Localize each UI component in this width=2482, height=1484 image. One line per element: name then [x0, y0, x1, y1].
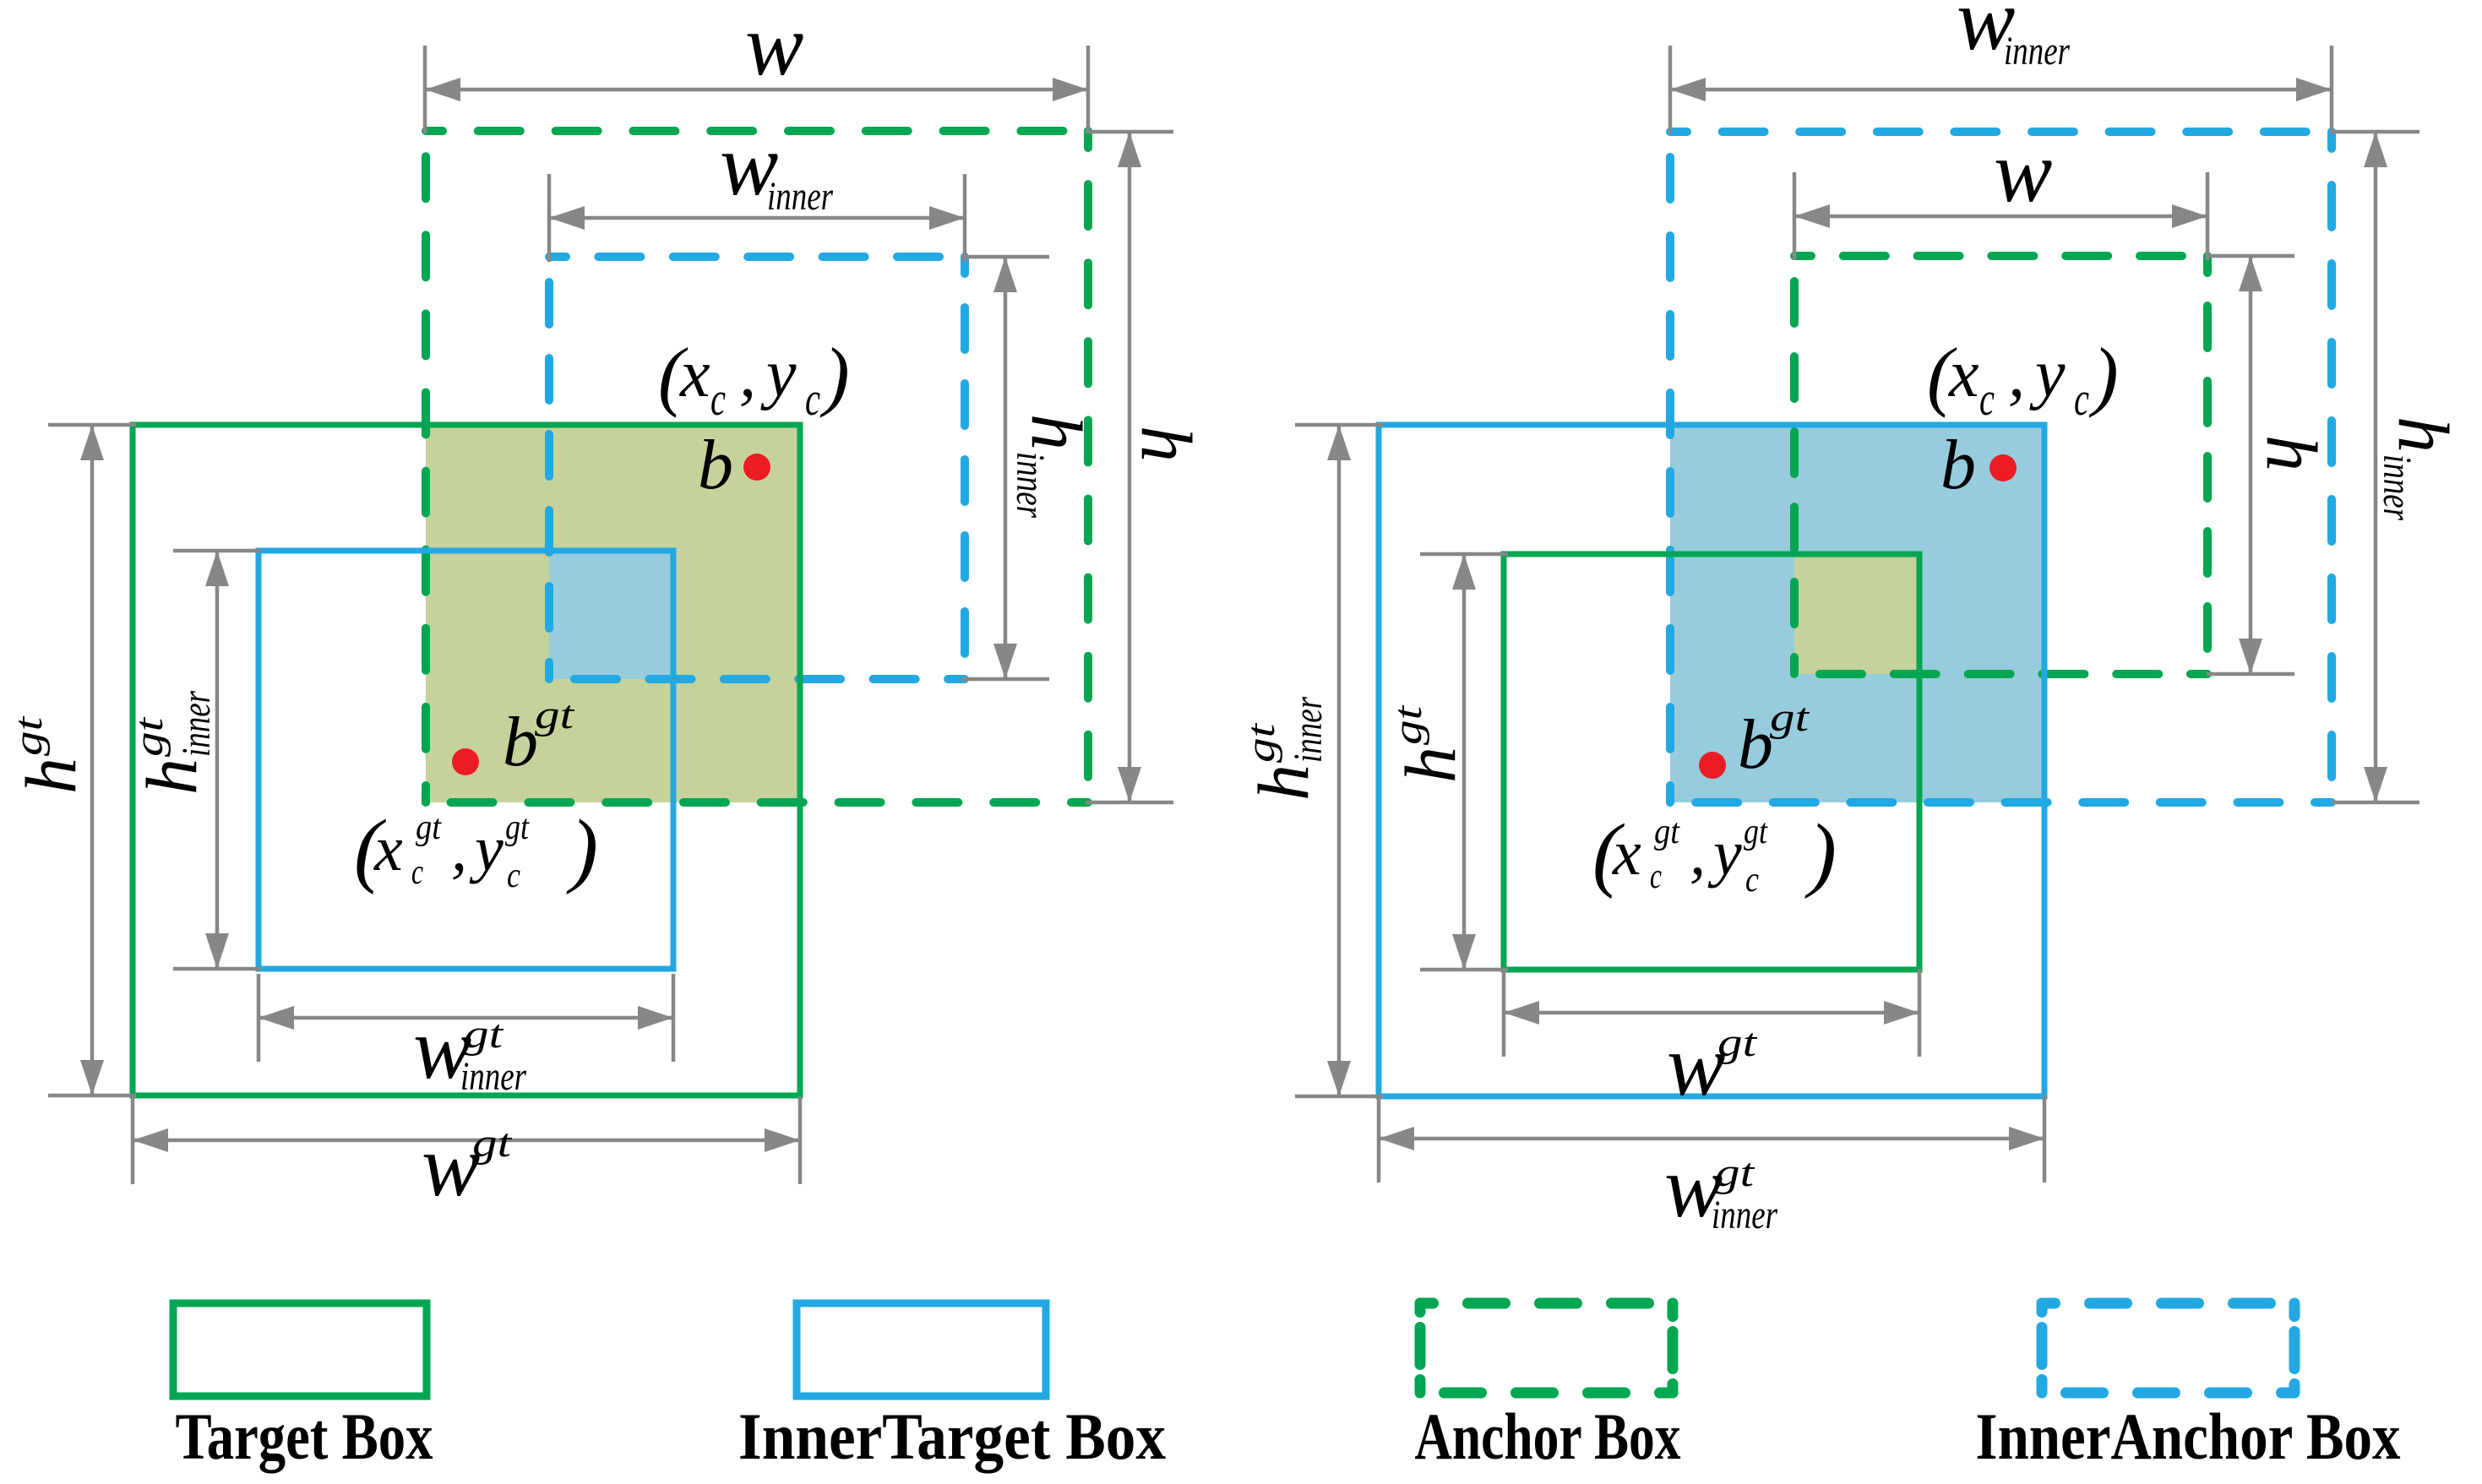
svg-text:w: w [745, 0, 803, 94]
svg-text:inner: inner [2004, 29, 2070, 73]
svg-text:inner: inner [2375, 454, 2419, 520]
svg-text:inner: inner [1712, 1193, 1777, 1237]
svg-text:h: h [2251, 435, 2332, 471]
svg-text:): ) [819, 332, 850, 418]
svg-text:h: h [2383, 416, 2464, 453]
svg-text:h: h [1390, 747, 1471, 783]
svg-text:x: x [679, 337, 710, 411]
svg-text:c: c [1745, 861, 1759, 900]
svg-text:gt: gt [1770, 695, 1810, 740]
svg-text:y: y [1707, 818, 1742, 889]
svg-text:gt: gt [1654, 813, 1680, 851]
svg-text:x: x [1612, 818, 1641, 889]
svg-text:inner: inner [174, 691, 219, 757]
svg-text:h: h [1243, 764, 1324, 801]
svg-text:gt: gt [6, 715, 51, 756]
svg-text:c: c [1979, 373, 1995, 426]
svg-text:inner: inner [1286, 697, 1331, 763]
svg-text:h: h [10, 758, 91, 794]
svg-text:gt: gt [416, 808, 442, 847]
svg-text:w: w [1994, 123, 2052, 220]
svg-text:gt: gt [464, 1012, 504, 1057]
svg-text:c: c [1650, 857, 1662, 896]
svg-text:gt: gt [1385, 704, 1430, 745]
svg-text:InnerTarget Box: InnerTarget Box [738, 1400, 1166, 1473]
svg-text:,: , [2008, 337, 2025, 411]
svg-text:inner: inner [1008, 452, 1053, 518]
svg-text:h: h [1126, 426, 1207, 462]
svg-text:gt: gt [535, 693, 575, 737]
svg-text:c: c [507, 856, 520, 895]
svg-text:,: , [1690, 818, 1706, 889]
svg-text:c: c [710, 373, 726, 426]
svg-text:c: c [2074, 373, 2089, 426]
svg-text:y: y [760, 337, 797, 411]
svg-text:gt: gt [1238, 722, 1283, 763]
svg-text:y: y [2029, 337, 2066, 411]
svg-text:gt: gt [127, 716, 171, 757]
svg-text:gt: gt [505, 808, 530, 847]
svg-text:,: , [451, 813, 467, 884]
svg-text:b: b [1738, 705, 1773, 784]
svg-text:c: c [805, 373, 820, 426]
svg-text:b: b [1940, 426, 1976, 504]
svg-text:,: , [739, 337, 756, 411]
svg-text:Target Box: Target Box [176, 1400, 433, 1473]
svg-text:y: y [469, 813, 503, 884]
svg-text:Anchor Box: Anchor Box [1415, 1400, 1681, 1473]
svg-text:): ) [1804, 807, 1837, 900]
svg-text:): ) [566, 803, 598, 895]
svg-text:gt: gt [1715, 1150, 1755, 1195]
svg-text:b: b [698, 426, 733, 504]
svg-text:inner: inner [460, 1054, 526, 1099]
svg-text:x: x [373, 813, 403, 884]
svg-text:InnerAnchor Box: InnerAnchor Box [1976, 1400, 2401, 1473]
svg-text:x: x [1948, 337, 1979, 411]
svg-text:gt: gt [472, 1121, 513, 1166]
svg-text:w: w [1667, 1017, 1725, 1114]
svg-text:): ) [2088, 332, 2119, 418]
svg-text:h: h [131, 758, 212, 795]
svg-text:inner: inner [767, 174, 833, 219]
svg-text:gt: gt [1717, 1020, 1758, 1065]
svg-text:b: b [503, 703, 538, 781]
svg-text:w: w [422, 1117, 480, 1215]
svg-text:h: h [1016, 414, 1097, 450]
svg-text:gt: gt [1744, 813, 1768, 851]
svg-text:c: c [411, 853, 423, 892]
